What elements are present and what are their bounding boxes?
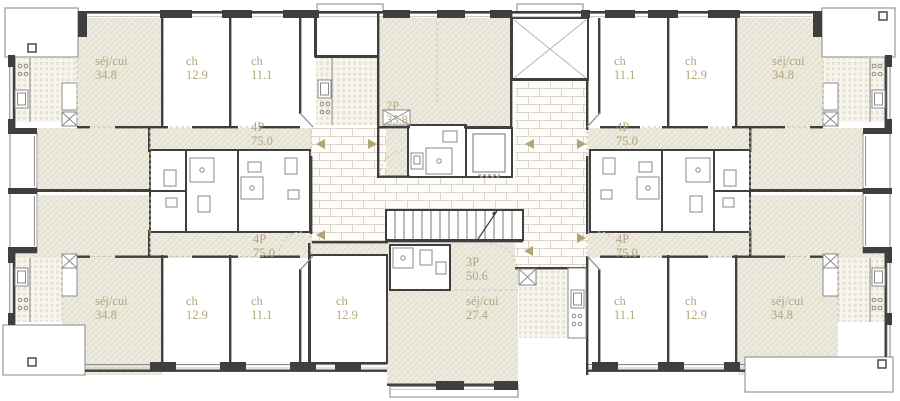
terrace-bottom-left — [3, 325, 85, 375]
label-bedroom-a-top-left: ch12.9 — [186, 55, 208, 83]
label-bedroom-b-bottom-right: ch11.1 — [614, 295, 635, 323]
label-living-bottom-right: séj/cui34.8 — [771, 295, 804, 323]
label-unit-top-right: 4P75.0 — [616, 121, 638, 149]
label-unit-bottom-right: 4P75.0 — [616, 233, 638, 261]
label-bedroom-a-bottom-right: ch12.9 — [685, 295, 707, 323]
label-living-3p: séj/cui27.4 — [466, 295, 499, 323]
label-bedroom-3p: ch12.9 — [336, 295, 358, 323]
terrace-top-right — [822, 8, 895, 57]
label-bedroom-b-bottom-left: ch11.1 — [251, 295, 272, 323]
label-unit-bottom-left: 4P75.0 — [253, 233, 275, 261]
label-bedroom-a-bottom-left: ch12.9 — [186, 295, 208, 323]
entry-closet — [316, 12, 378, 57]
label-bedroom-b-top-right: ch11.1 — [614, 55, 635, 83]
label-unit-3p: 3P50.6 — [466, 256, 488, 284]
label-living-top-left: séj/cui34.8 — [95, 55, 128, 83]
terrace-top-left — [5, 8, 78, 57]
staircase — [386, 210, 523, 240]
label-bedroom-a-top-right: ch12.9 — [685, 55, 707, 83]
label-bedroom-b-top-left: ch11.1 — [251, 55, 272, 83]
label-unit-2p: 2P35.8 — [386, 100, 408, 128]
floor-plan-canvas: séj/cui34.8 ch12.9 ch11.1 4P75.0 2P35.8 … — [0, 0, 900, 401]
terrace-bottom-right — [745, 357, 893, 392]
label-living-top-right: séj/cui34.8 — [772, 55, 805, 83]
floor-plan-drawing — [0, 0, 900, 401]
label-living-bottom-left: séj/cui34.8 — [95, 295, 128, 323]
label-unit-top-left: 4P75.0 — [251, 121, 273, 149]
